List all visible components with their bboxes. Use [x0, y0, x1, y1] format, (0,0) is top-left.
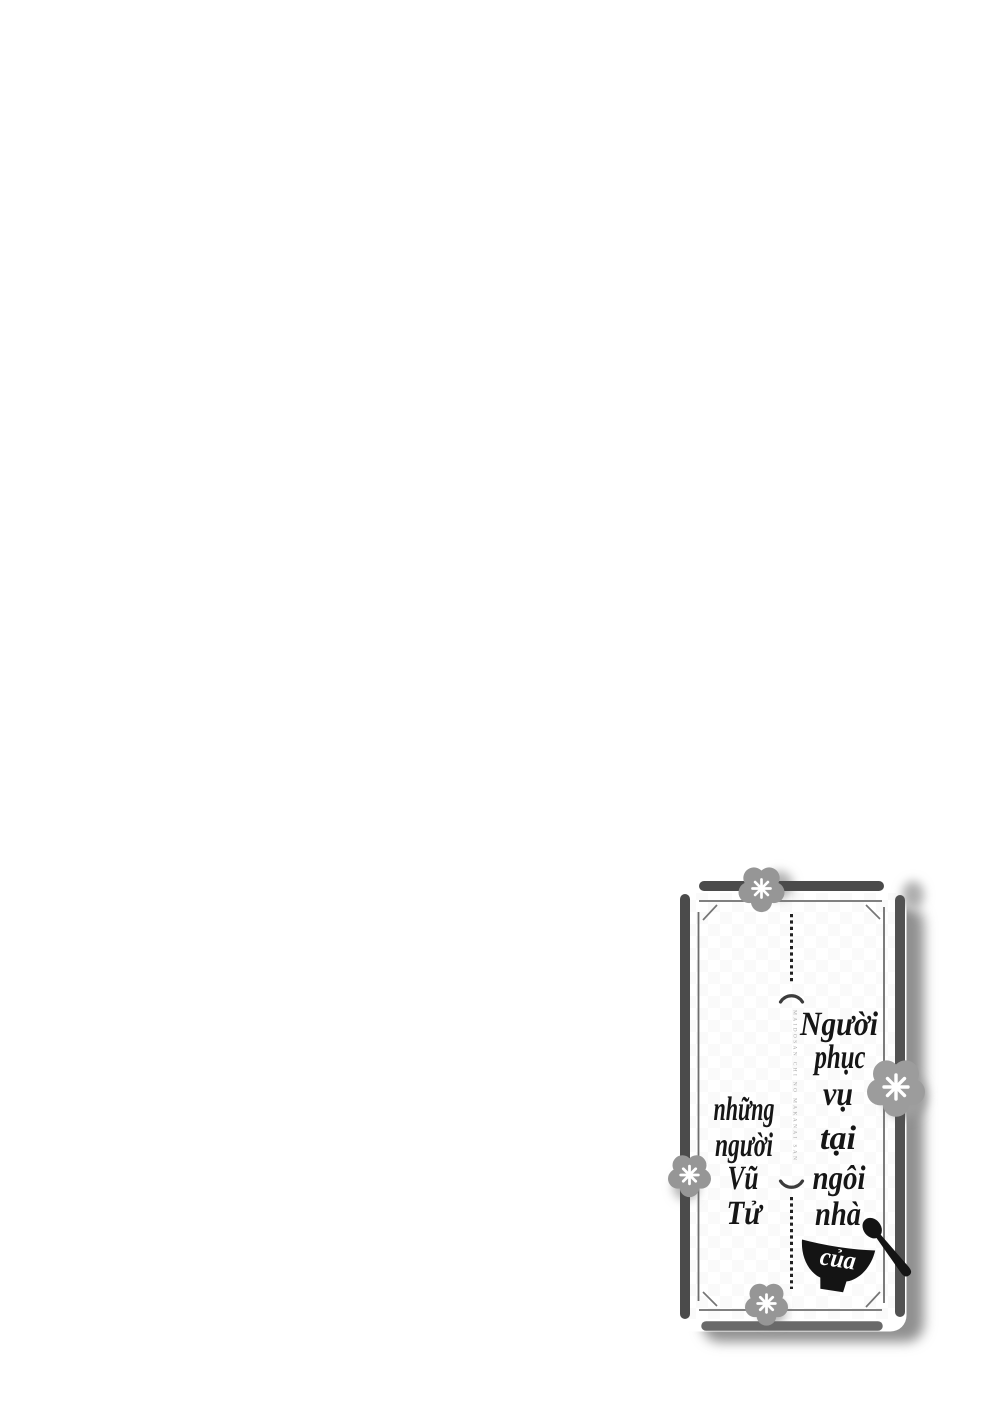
- svg-text:MAIDOSAN CHI NO MAKANAI SAN: MAIDOSAN CHI NO MAKANAI SAN: [792, 1010, 798, 1162]
